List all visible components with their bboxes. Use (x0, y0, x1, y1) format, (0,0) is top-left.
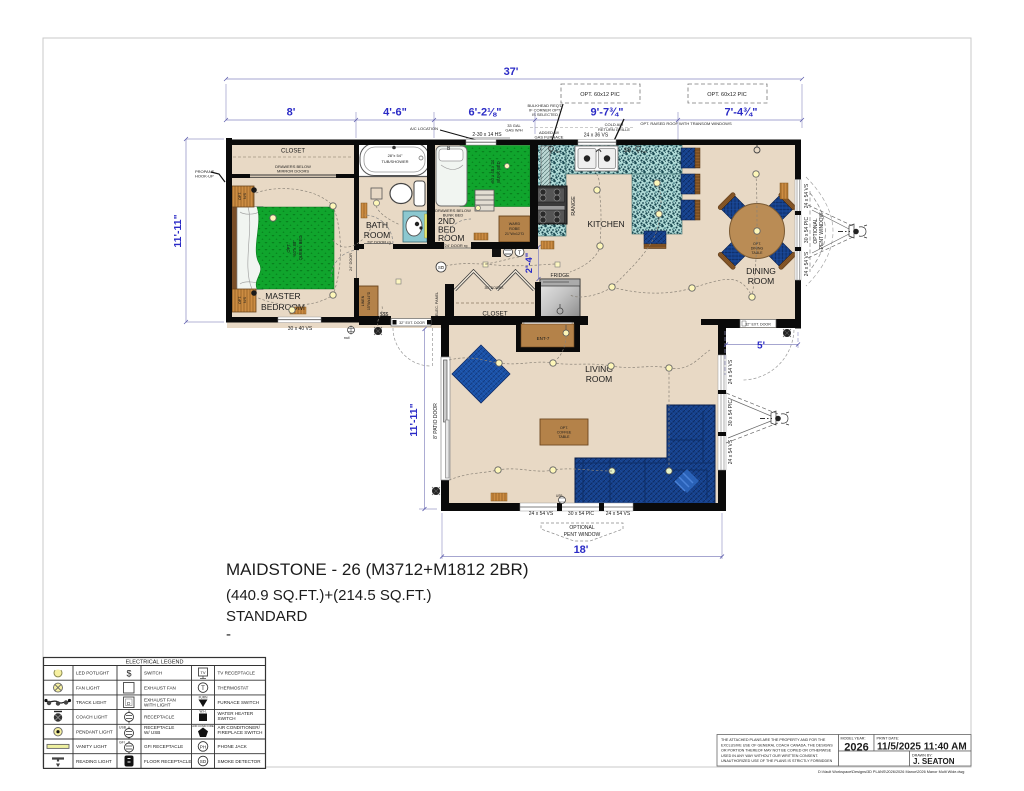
svg-text:7'-4¾": 7'-4¾" (725, 107, 758, 119)
svg-text:TRACK LIGHT: TRACK LIGHT (76, 700, 107, 705)
svg-text:(440.9 SQ.FT.)+(214.5 SQ.FT.): (440.9 SQ.FT.)+(214.5 SQ.FT.) (226, 587, 432, 604)
svg-text:OR PORTION THEREOF MAY NOT BE: OR PORTION THEREOF MAY NOT BE COPIED OR … (721, 749, 832, 753)
svg-text:6'-2⅛": 6'-2⅛" (469, 107, 502, 119)
svg-text:TV: TV (200, 670, 205, 675)
svg-text:32" EXT. DOOR: 32" EXT. DOOR (745, 323, 771, 327)
svg-text:$: $ (126, 669, 131, 679)
svg-text:D:\Vault Workspace\Designs\3D: D:\Vault Workspace\Designs\3D PLANS\2026… (818, 770, 964, 774)
svg-text:11'-11": 11'-11" (172, 214, 184, 247)
svg-text:ROBE: ROBE (509, 227, 520, 231)
svg-text:A/C LOCATION: A/C LOCATION (410, 126, 438, 131)
svg-text:STANDARD: STANDARD (226, 608, 308, 625)
svg-text:VANITY LIGHT: VANITY LIGHT (76, 744, 107, 749)
svg-text:RETURN GRILLE: RETURN GRILLE (598, 127, 630, 132)
svg-text:PENT WINDOW: PENT WINDOW (819, 212, 825, 249)
svg-text:8': 8' (287, 107, 296, 119)
svg-text:N/S: N/S (243, 296, 247, 303)
svg-text:ENT-7: ENT-7 (537, 336, 550, 341)
svg-text:THERMOSTAT: THERMOSTAT (218, 685, 249, 690)
svg-text:swtl: swtl (344, 336, 350, 340)
svg-text:J. SEATON: J. SEATON (913, 757, 955, 766)
svg-text:Fan: Fan (554, 150, 560, 154)
svg-text:PH: PH (200, 745, 206, 750)
svg-text:5': 5' (757, 341, 765, 352)
svg-text:FLOOR RECEPTACLE: FLOOR RECEPTACLE (144, 759, 191, 764)
svg-text:24 x 54 VS: 24 x 54 VS (728, 359, 734, 384)
svg-text:FURNACE SWITCH: FURNACE SWITCH (218, 700, 260, 705)
svg-text:30" DOORS: 30" DOORS (485, 286, 505, 290)
svg-text:COACH LIGHT: COACH LIGHT (76, 715, 108, 720)
svg-text:PHONE JACK: PHONE JACK (218, 744, 248, 749)
svg-text:ELECTRICAL LEGEND: ELECTRICAL LEGEND (126, 660, 184, 666)
svg-text:W.H.: W.H. (200, 710, 207, 714)
svg-text:24 x 54 VS: 24 x 54 VS (804, 251, 810, 276)
svg-text:15"Wx14"D: 15"Wx14"D (367, 291, 371, 310)
svg-text:EXHAUST FAN: EXHAUST FAN (144, 685, 176, 690)
svg-text:60"x 80": 60"x 80" (292, 240, 297, 256)
svg-text:CLOSET: CLOSET (281, 149, 305, 155)
svg-text:24 x 54 VS: 24 x 54 VS (606, 511, 631, 517)
svg-text:USED IN ANY WAY WITHOUT OUR WR: USED IN ANY WAY WITHOUT OUR WRITTEN CONS… (721, 754, 818, 758)
svg-text:LINEN: LINEN (361, 295, 365, 306)
svg-text:FAN LIGHT: FAN LIGHT (76, 685, 100, 690)
svg-text:READING LIGHT: READING LIGHT (76, 759, 112, 764)
svg-text:RANGE: RANGE (571, 196, 577, 216)
svg-text:GFI: GFI (119, 741, 125, 745)
svg-text:HOOK-UP: HOOK-UP (195, 174, 214, 179)
svg-text:18': 18' (574, 544, 589, 556)
svg-text:FURN: FURN (199, 696, 209, 700)
svg-text:TUB/SHOWER: TUB/SHOWER (381, 159, 408, 164)
svg-text:KITCHEN: KITCHEN (587, 219, 624, 229)
svg-text:21"Wx12"D: 21"Wx12"D (505, 232, 525, 236)
svg-text:ROOM: ROOM (438, 233, 464, 243)
svg-text:THE ATTACHED PLANS ARE THE PRO: THE ATTACHED PLANS ARE THE PROPERTY AND … (721, 738, 826, 742)
svg-text:MASTER: MASTER (265, 291, 300, 301)
svg-text:24 x 54 VS: 24 x 54 VS (529, 511, 554, 517)
svg-text:QUEEN BED: QUEEN BED (298, 236, 303, 261)
svg-text:W/ USB: W/ USB (144, 730, 160, 735)
svg-text:N/S: N/S (243, 192, 247, 199)
svg-text:24 x 54 VS: 24 x 54 VS (804, 183, 810, 208)
svg-text:GAS FURNACE: GAS FURNACE (535, 135, 564, 140)
svg-text:PRINT DATE:: PRINT DATE: (877, 737, 900, 741)
svg-text:FRIDGE: FRIDGE (551, 273, 571, 279)
svg-text:24' DOOR rg: 24' DOOR rg (445, 243, 468, 248)
svg-text:MIRROR DOORS: MIRROR DOORS (277, 169, 309, 174)
svg-text:GFI RECEPTACLE: GFI RECEPTACLE (144, 744, 183, 749)
svg-text:TV RECEPTACLE: TV RECEPTACLE (218, 671, 255, 676)
svg-text:SD: SD (200, 759, 207, 764)
svg-text:SWITCH: SWITCH (144, 671, 162, 676)
svg-text:USB: USB (119, 726, 127, 730)
svg-text:30 x 40 VS: 30 x 40 VS (288, 326, 313, 332)
svg-text:28"x 54": 28"x 54" (388, 153, 403, 158)
svg-text:AIR COND/ FIRE: AIR COND/ FIRE (192, 724, 214, 728)
svg-text:OPT.: OPT. (238, 296, 242, 304)
svg-text:OPT.: OPT. (286, 243, 291, 252)
svg-text:GAS W/H: GAS W/H (505, 128, 522, 133)
svg-text:32" EXT. DOOR: 32" EXT. DOOR (399, 321, 425, 325)
svg-text:SMOKE DETECTOR: SMOKE DETECTOR (218, 759, 262, 764)
svg-text:RECEPTACLE: RECEPTACLE (144, 715, 174, 720)
svg-text:TABLE: TABLE (558, 435, 570, 439)
svg-text:4'-6": 4'-6" (383, 107, 407, 119)
svg-text:9'-7¾": 9'-7¾" (591, 107, 624, 119)
svg-text:Fan: Fan (641, 150, 647, 154)
svg-text:BEDROOM: BEDROOM (261, 302, 305, 312)
svg-text:BATH: BATH (366, 220, 388, 230)
svg-text:MODEL YEAR:: MODEL YEAR: (841, 737, 866, 741)
svg-text:COFFEE: COFFEE (557, 431, 572, 435)
svg-text:PENT WINDOW: PENT WINDOW (564, 532, 601, 538)
svg-text:IS SELECTED: IS SELECTED (532, 112, 558, 117)
svg-text:OPT. 60x12 PIC: OPT. 60x12 PIC (580, 92, 619, 98)
svg-text:24" DOOR: 24" DOOR (349, 253, 353, 271)
svg-text:2-30 x 14 HS: 2-30 x 14 HS (472, 132, 502, 138)
svg-text:24 x 36 VS: 24 x 36 VS (584, 133, 609, 139)
svg-text:-60 x 48 x 24: -60 x 48 x 24 (490, 159, 495, 184)
svg-text:SWITCH: SWITCH (218, 716, 236, 721)
svg-text:WARD: WARD (509, 222, 521, 226)
svg-text:UNAUTHORIZED USE OF THE PLANS: UNAUTHORIZED USE OF THE PLANS IS STRICTL… (721, 759, 833, 763)
svg-text:30 x 54 PIC: 30 x 54 PIC (804, 217, 810, 244)
svg-text:ROOM: ROOM (748, 276, 774, 286)
svg-text:LED POTLIGHT: LED POTLIGHT (76, 671, 109, 676)
svg-text:24 x 54 VS: 24 x 54 VS (728, 439, 734, 464)
svg-text:OPT. RAISED ROOF WITH TRANSOM: OPT. RAISED ROOF WITH TRANSOM WINDOWS (640, 121, 732, 126)
svg-text:OPT. 60x12 PIC: OPT. 60x12 PIC (707, 92, 746, 98)
svg-text:PENDANT LIGHT: PENDANT LIGHT (76, 729, 113, 734)
svg-text:DINING: DINING (751, 247, 764, 251)
svg-text:T: T (201, 686, 205, 692)
svg-text:OPT.: OPT. (238, 192, 242, 200)
svg-text:BUNK BED: BUNK BED (496, 161, 501, 182)
svg-text:MAIDSTONE - 26 (M3712+M1812 2B: MAIDSTONE - 26 (M3712+M1812 2BR) (226, 560, 529, 579)
svg-text:11'-11": 11'-11" (408, 403, 420, 436)
svg-text:FIREPLACE SWITCH: FIREPLACE SWITCH (218, 730, 263, 735)
svg-text:WITH LIGHT: WITH LIGHT (144, 703, 171, 708)
svg-text:ROOM: ROOM (586, 374, 612, 384)
svg-text:$$: $$ (624, 148, 631, 154)
svg-text:SD: SD (438, 265, 445, 270)
svg-text:OPTIONAL: OPTIONAL (569, 525, 595, 531)
svg-text:-: - (226, 626, 231, 643)
svg-text:8' PATIO DOOR: 8' PATIO DOOR (433, 403, 439, 439)
svg-text:TABLE: TABLE (751, 251, 763, 255)
svg-text:30 x 54 PIC: 30 x 54 PIC (728, 400, 734, 427)
svg-text:37': 37' (504, 66, 519, 78)
svg-text:2'-4": 2'-4" (524, 253, 535, 274)
svg-text:30 x 54 PIC: 30 x 54 PIC (568, 511, 595, 517)
svg-text:ROOM: ROOM (364, 230, 390, 240)
svg-text:EXCLUSIVE USE OF GENERAL COACH: EXCLUSIVE USE OF GENERAL COACH CANADA. T… (721, 743, 833, 747)
svg-text:OPT.: OPT. (560, 426, 568, 430)
svg-text:ELEC. PANEL: ELEC. PANEL (435, 292, 439, 316)
svg-text:DINING: DINING (746, 266, 776, 276)
